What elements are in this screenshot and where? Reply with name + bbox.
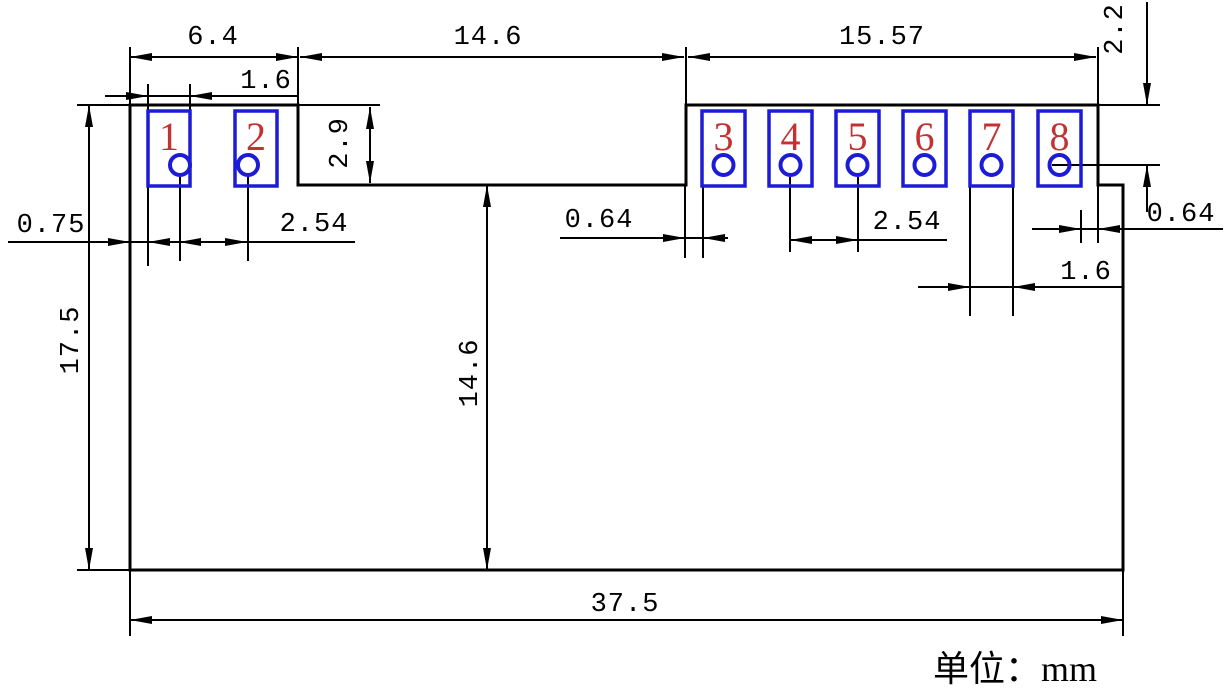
arrowhead	[1143, 83, 1151, 105]
arrowhead	[126, 92, 148, 100]
pad-4: 4	[769, 111, 812, 186]
pad-2-number: 2	[246, 114, 266, 159]
pad-7-number: 7	[982, 114, 1002, 159]
pad-5-number: 5	[848, 114, 868, 159]
pad-8-number: 8	[1050, 114, 1070, 159]
pad-1: 1	[148, 111, 190, 186]
pad-3-number: 3	[714, 114, 734, 159]
arrowhead	[85, 105, 93, 127]
dim-label-14.6-top: 14.6	[454, 23, 523, 53]
pad-6: 6	[903, 111, 946, 186]
arrowhead	[85, 548, 93, 570]
dim-label-15.57: 15.57	[839, 23, 925, 53]
arrowhead	[663, 234, 685, 242]
dim-label-2.54-left: 2.54	[280, 210, 349, 240]
pad-2: 2	[235, 111, 277, 186]
dim-label-2.9: 2.9	[326, 117, 356, 169]
arrowhead	[483, 548, 491, 570]
arrowhead	[703, 234, 725, 242]
arrowhead	[300, 53, 322, 61]
arrowhead	[790, 236, 812, 244]
arrowhead	[179, 238, 201, 246]
pad-4-number: 4	[781, 114, 801, 159]
dim-label-17.5: 17.5	[57, 306, 87, 375]
arrowhead	[190, 92, 212, 100]
arrowhead	[366, 107, 374, 129]
dim-label-37.5: 37.5	[591, 590, 660, 620]
arrowhead	[1143, 165, 1151, 187]
dim-label-2.2: 2.2	[1101, 3, 1131, 55]
pad-6-number: 6	[915, 114, 935, 159]
arrowhead	[148, 238, 170, 246]
unit-note: 单位：mm	[933, 649, 1097, 689]
arrowhead	[483, 185, 491, 207]
pad-3: 3	[702, 111, 745, 186]
pad-1-number: 1	[159, 114, 179, 159]
arrowhead	[688, 53, 710, 61]
dim-label-0.64-left: 0.64	[565, 206, 634, 236]
dim-label-0.75: 0.75	[17, 211, 86, 241]
arrowhead	[276, 53, 298, 61]
dim-label-1.6-right: 1.6	[1060, 258, 1112, 288]
dim-label-1.6-left: 1.6	[240, 67, 292, 97]
arrowhead	[225, 238, 247, 246]
arrowhead	[1059, 225, 1081, 233]
arrowhead	[662, 53, 684, 61]
dim-label-0.64-right: 0.64	[1147, 200, 1216, 230]
solder-pads: 1 2 3 4 5 6 7	[148, 111, 1081, 186]
arrowhead	[948, 283, 970, 291]
arrowhead	[130, 616, 152, 624]
arrowhead	[366, 161, 374, 183]
arrowhead	[836, 236, 858, 244]
dim-label-14.6-vert: 14.6	[456, 339, 486, 408]
dim-label-2.54-right: 2.54	[873, 208, 942, 238]
arrowhead	[130, 53, 152, 61]
pad-8: 8	[1038, 111, 1081, 186]
arrowhead	[108, 238, 130, 246]
pad-7: 7	[970, 111, 1013, 186]
dim-label-6.4: 6.4	[187, 23, 239, 53]
pcb-footprint-drawing: 1 2 3 4 5 6 7	[0, 0, 1225, 692]
arrowhead	[1013, 283, 1035, 291]
arrowhead	[1074, 53, 1096, 61]
mechanical-drawing-canvas: 1 2 3 4 5 6 7	[0, 0, 1225, 692]
arrowhead	[1098, 225, 1120, 233]
pad-5: 5	[836, 111, 879, 186]
arrowhead	[1101, 616, 1123, 624]
module-body-outline	[130, 105, 1123, 570]
